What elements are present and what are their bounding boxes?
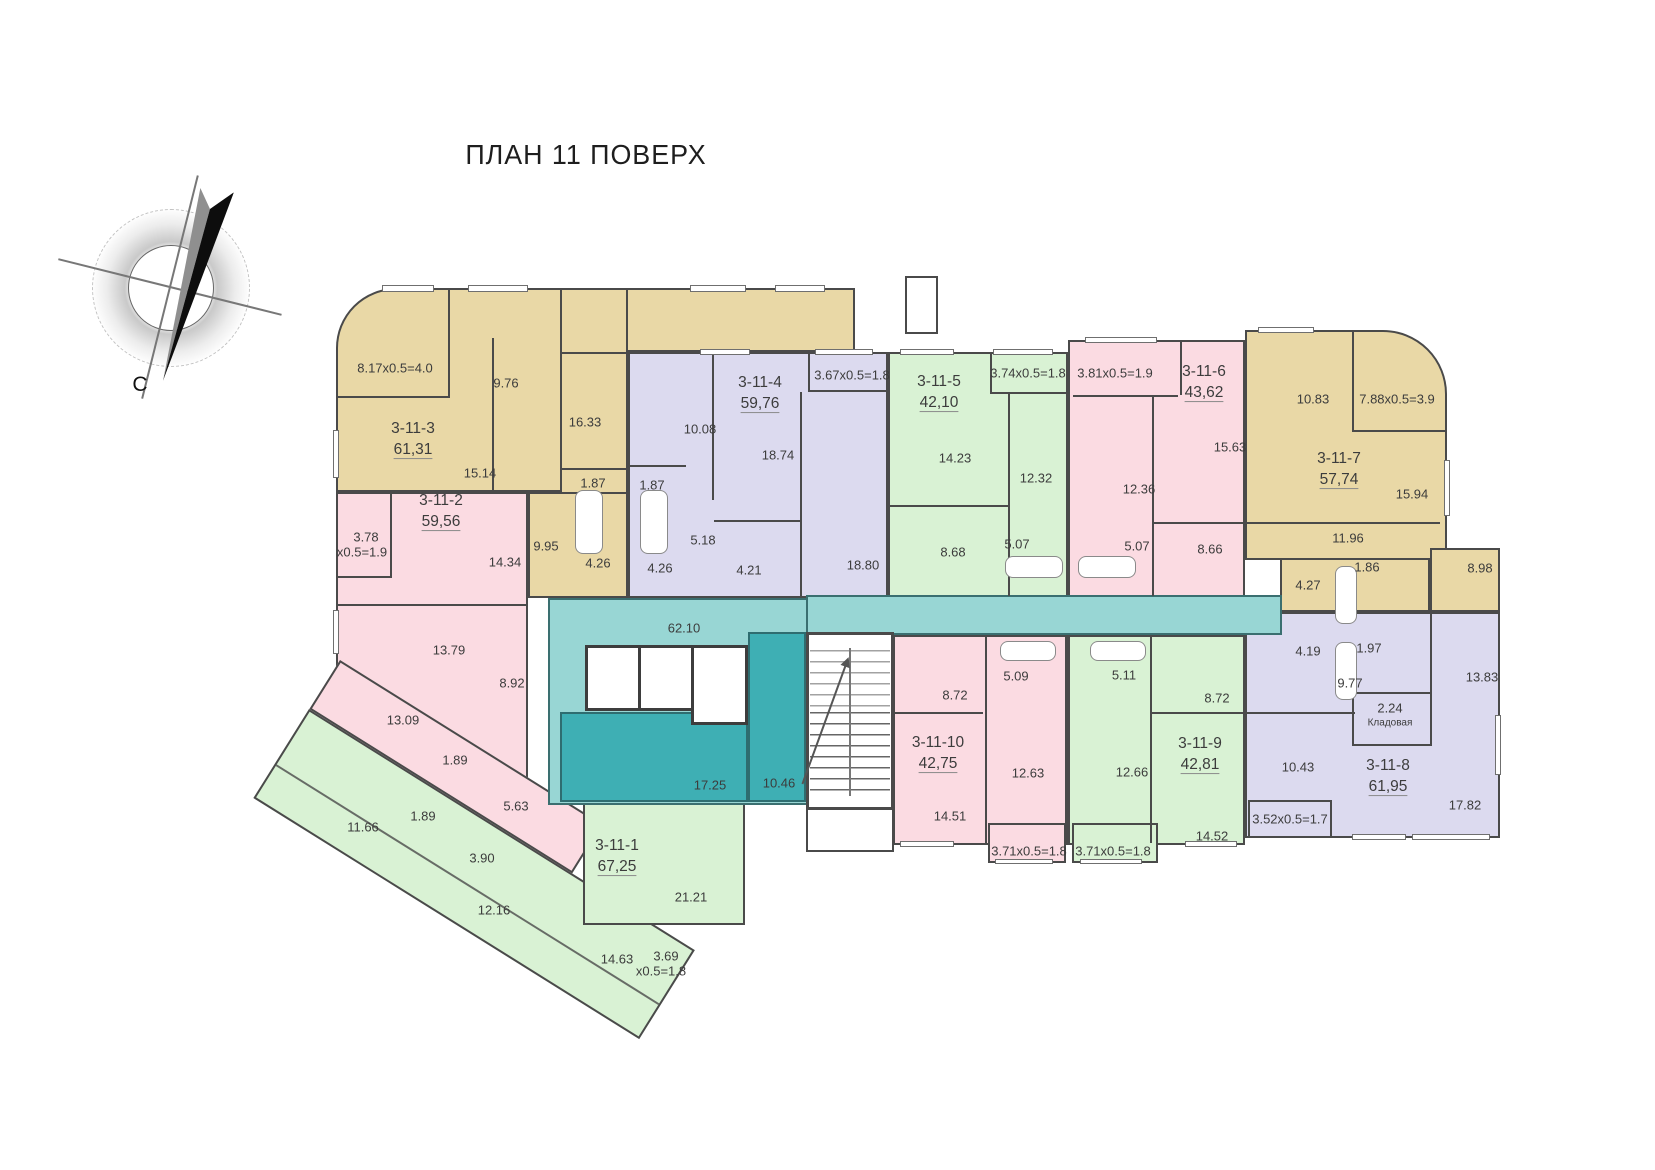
apartment-3-11-3: [628, 288, 855, 352]
room-area-label: 10.43: [1282, 760, 1315, 775]
floor-plan: ПЛАН 11 ПОВЕРХ С: [0, 0, 1655, 1170]
room-area-label: 15.14: [464, 466, 497, 481]
apartment-label-3-11-7: 3-11-757,74: [1317, 449, 1361, 491]
room-area-label: 12.66: [1116, 765, 1149, 780]
room-area-label: 10.08: [684, 422, 717, 437]
room-area-label: Кладовая: [1368, 718, 1413, 729]
vent-shaft: [905, 276, 938, 334]
room-area-label: 10.46: [763, 776, 796, 791]
room-area-label: 3.52x0.5=1.7: [1252, 812, 1328, 827]
room-area-label: 5.09: [1003, 669, 1028, 684]
room-area-label: 3.81x0.5=1.9: [1077, 366, 1153, 381]
room-area-label: 8.92: [499, 676, 524, 691]
room-area-label: 16.33: [569, 415, 602, 430]
room-area-label: 12.32: [1020, 471, 1053, 486]
compass-north-label: С: [132, 373, 147, 397]
room-area-label: 13.79: [433, 643, 466, 658]
apartment-label-3-11-1: 3-11-167,25: [595, 836, 639, 878]
room-area-label: 10.83: [1297, 392, 1330, 407]
room-area-label: 4.26: [585, 556, 610, 571]
room-area-label: 5.63: [503, 799, 528, 814]
room-area-label: 62.10: [668, 621, 701, 636]
room-area-label: 1.87: [580, 476, 605, 491]
room-area-label: 1.89: [442, 753, 467, 768]
room-area-label: 13.09: [387, 713, 420, 728]
room-area-label: 14.34: [489, 555, 522, 570]
corridor: [806, 595, 1282, 635]
room-area-label: 8.98: [1467, 561, 1492, 576]
room-area-label: 5.18: [690, 533, 715, 548]
room-area-label: 9.77: [1337, 676, 1362, 691]
room-area-label: 12.16: [478, 903, 511, 918]
room-area-label: 8.72: [1204, 691, 1229, 706]
room-area-label: 14.52: [1196, 829, 1229, 844]
apartment-label-3-11-10: 3-11-1042,75: [912, 733, 964, 775]
room-area-label: 1.89: [410, 809, 435, 824]
bathtub-icon: [1005, 556, 1063, 578]
room-area-label: 3.69: [653, 949, 678, 964]
room-area-label: 4.27: [1295, 578, 1320, 593]
room-area-label: 3.90: [469, 851, 494, 866]
room-area-label: 7.88x0.5=3.9: [1359, 392, 1435, 407]
room-area-label: 3.78: [353, 530, 378, 545]
elevator-shaft: [638, 645, 694, 711]
room-area-label: 4.26: [647, 561, 672, 576]
room-area-label: 3.74x0.5=1.8: [990, 366, 1066, 381]
room-area-label: 1.87: [639, 478, 664, 493]
room-area-label: 8.68: [940, 545, 965, 560]
elevator-shaft: [691, 645, 748, 725]
room-area-label: x0.5=1.9: [337, 545, 387, 560]
apartment-label-3-11-9: 3-11-942,81: [1178, 734, 1222, 776]
stair-divider: [849, 648, 851, 796]
bathtub-icon: [1078, 556, 1136, 578]
room-area-label: 13.83: [1466, 670, 1499, 685]
room-area-label: 14.51: [934, 809, 967, 824]
bathtub-icon: [1335, 642, 1357, 700]
room-area-label: 15.63: [1214, 440, 1247, 455]
room-area-label: 3.71x0.5=1.8: [991, 844, 1067, 859]
apartment-label-3-11-4: 3-11-459,76: [738, 373, 782, 415]
room-area-label: 8.66: [1197, 542, 1222, 557]
room-area-label: 14.63: [601, 952, 634, 967]
apartment-label-3-11-2: 3-11-259,56: [419, 491, 463, 533]
bathtub-icon: [1335, 566, 1357, 624]
room-area-label: x0.5=1.8: [636, 964, 686, 979]
apartment-3-11-7: [1245, 330, 1447, 560]
apartment-3-11-7: [1430, 548, 1500, 612]
room-area-label: 1.97: [1356, 641, 1381, 656]
room-area-label: 9.76: [493, 376, 518, 391]
room-area-label: 8.72: [942, 688, 967, 703]
bathtub-icon: [1090, 641, 1146, 661]
apartment-label-3-11-3: 3-11-361,31: [391, 419, 435, 461]
room-area-label: 5.07: [1124, 539, 1149, 554]
apartment-label-3-11-5: 3-11-542,10: [917, 372, 961, 414]
room-area-label: 17.82: [1449, 798, 1482, 813]
bathtub-icon: [1000, 641, 1056, 661]
apartment-label-3-11-8: 3-11-861,95: [1366, 756, 1410, 798]
bathtub-icon: [575, 490, 603, 554]
room-area-label: 2.24: [1377, 701, 1402, 716]
room-area-label: 4.19: [1295, 644, 1320, 659]
room-area-label: 11.66: [347, 820, 379, 835]
room-area-label: 9.95: [533, 539, 558, 554]
room-area-label: 18.80: [847, 558, 880, 573]
room-area-label: 15.94: [1396, 487, 1429, 502]
room-area-label: 12.63: [1012, 766, 1045, 781]
bathtub-icon: [640, 490, 668, 554]
page-title: ПЛАН 11 ПОВЕРХ: [465, 139, 706, 171]
room-area-label: 3.67x0.5=1.8: [814, 368, 890, 383]
stair-exit-lobby: [806, 808, 894, 852]
room-area-label: 12.36: [1123, 482, 1156, 497]
room-area-label: 5.07: [1004, 537, 1029, 552]
room-area-label: 3.71x0.5=1.8: [1075, 844, 1151, 859]
room-area-label: 1.86: [1354, 560, 1379, 575]
room-area-label: 11.96: [1332, 531, 1364, 546]
room-area-label: 4.21: [736, 563, 761, 578]
room-area-label: 5.11: [1112, 668, 1136, 683]
room-area-label: 17.25: [694, 778, 727, 793]
apartment-label-3-11-6: 3-11-643,62: [1182, 362, 1226, 404]
room-area-label: 21.21: [675, 890, 708, 905]
room-area-label: 14.23: [939, 451, 972, 466]
elevator-shaft: [585, 645, 641, 711]
room-area-label: 18.74: [762, 448, 795, 463]
room-area-label: 8.17x0.5=4.0: [357, 361, 433, 376]
